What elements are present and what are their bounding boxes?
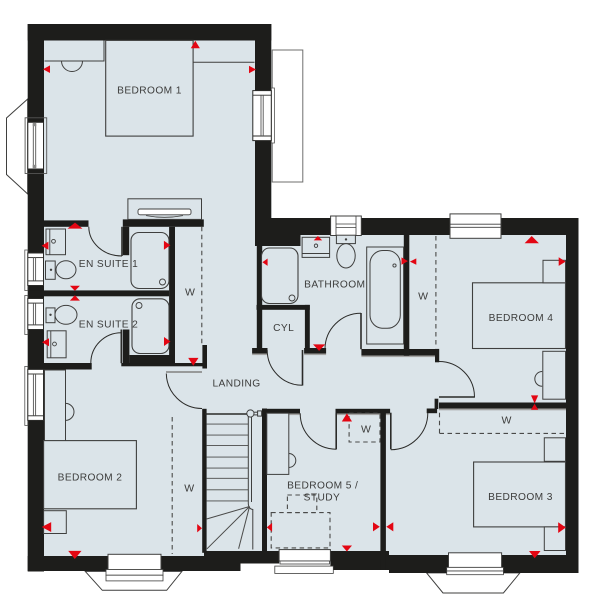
svg-text:W: W [184, 483, 194, 495]
svg-text:LANDING: LANDING [212, 379, 260, 390]
svg-text:W: W [185, 287, 195, 299]
svg-text:EN SUITE 1: EN SUITE 1 [79, 259, 138, 270]
svg-text:BEDROOM 4: BEDROOM 4 [489, 313, 554, 324]
svg-text:EN SUITE 2: EN SUITE 2 [79, 320, 138, 331]
svg-text:BATHROOM: BATHROOM [304, 280, 365, 291]
svg-text:BEDROOM 1: BEDROOM 1 [117, 86, 182, 97]
svg-text:CYL: CYL [273, 323, 294, 334]
svg-text:BEDROOM 5 /: BEDROOM 5 / [287, 481, 358, 492]
svg-text:W: W [361, 424, 371, 436]
svg-text:STUDY: STUDY [304, 493, 341, 504]
svg-text:BEDROOM 2: BEDROOM 2 [58, 473, 123, 484]
svg-text:BEDROOM 3: BEDROOM 3 [488, 492, 553, 503]
svg-text:W: W [501, 415, 511, 427]
svg-text:W: W [418, 291, 428, 303]
